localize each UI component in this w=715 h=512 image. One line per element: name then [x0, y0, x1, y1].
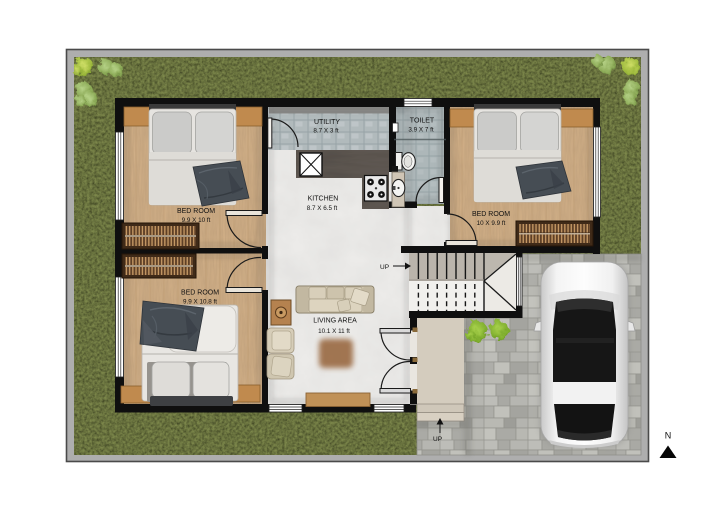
svg-text:10 X 9.9 ft: 10 X 9.9 ft — [477, 220, 506, 227]
svg-text:8.7 X 6.5 ft: 8.7 X 6.5 ft — [307, 205, 338, 212]
svg-text:LIVING AREA: LIVING AREA — [313, 318, 357, 325]
svg-text:KITCHEN: KITCHEN — [308, 196, 339, 203]
svg-text:TOILET: TOILET — [410, 118, 435, 125]
svg-text:N: N — [665, 431, 672, 441]
svg-text:3.9 X 7 ft: 3.9 X 7 ft — [408, 127, 433, 134]
svg-text:BED ROOM: BED ROOM — [472, 211, 510, 218]
svg-text:8.7 X 3 ft: 8.7 X 3 ft — [313, 128, 338, 135]
svg-text:BED ROOM: BED ROOM — [177, 208, 215, 215]
svg-text:BED ROOM: BED ROOM — [181, 290, 219, 297]
svg-text:UP: UP — [380, 264, 389, 271]
svg-text:UP: UP — [433, 436, 442, 443]
svg-text:9.9 X 10.8 ft: 9.9 X 10.8 ft — [183, 299, 217, 306]
svg-text:9.9 X 10 ft: 9.9 X 10 ft — [182, 217, 211, 224]
svg-text:10.1 X 11 ft: 10.1 X 11 ft — [318, 328, 350, 335]
svg-text:UTILITY: UTILITY — [314, 119, 340, 126]
